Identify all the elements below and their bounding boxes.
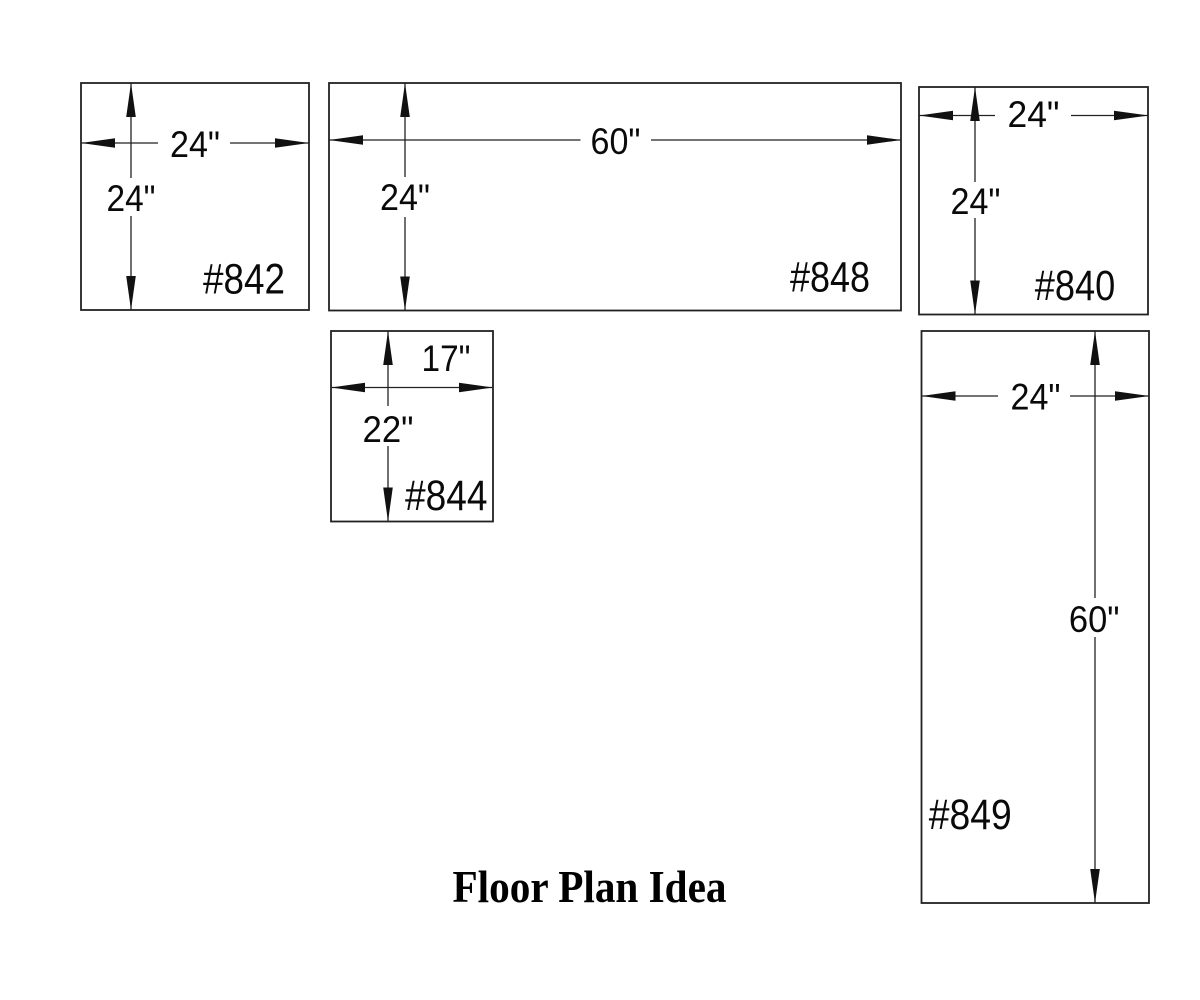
svg-text:#840: #840 bbox=[1035, 263, 1116, 310]
svg-text:24": 24" bbox=[380, 177, 430, 218]
svg-text:17": 17" bbox=[422, 338, 471, 379]
svg-text:#842: #842 bbox=[203, 257, 285, 304]
svg-text:60": 60" bbox=[1069, 599, 1120, 640]
svg-text:24": 24" bbox=[951, 181, 1001, 222]
svg-text:24": 24" bbox=[1008, 94, 1060, 135]
svg-text:24": 24" bbox=[107, 178, 156, 219]
svg-text:24": 24" bbox=[170, 124, 220, 165]
svg-text:22": 22" bbox=[363, 409, 414, 450]
svg-text:Floor Plan Idea: Floor Plan Idea bbox=[453, 861, 727, 912]
svg-text:#844: #844 bbox=[405, 473, 488, 520]
svg-text:24": 24" bbox=[1011, 377, 1061, 418]
svg-text:#848: #848 bbox=[790, 255, 870, 302]
svg-text:#849: #849 bbox=[929, 792, 1012, 839]
svg-text:60": 60" bbox=[591, 121, 641, 162]
